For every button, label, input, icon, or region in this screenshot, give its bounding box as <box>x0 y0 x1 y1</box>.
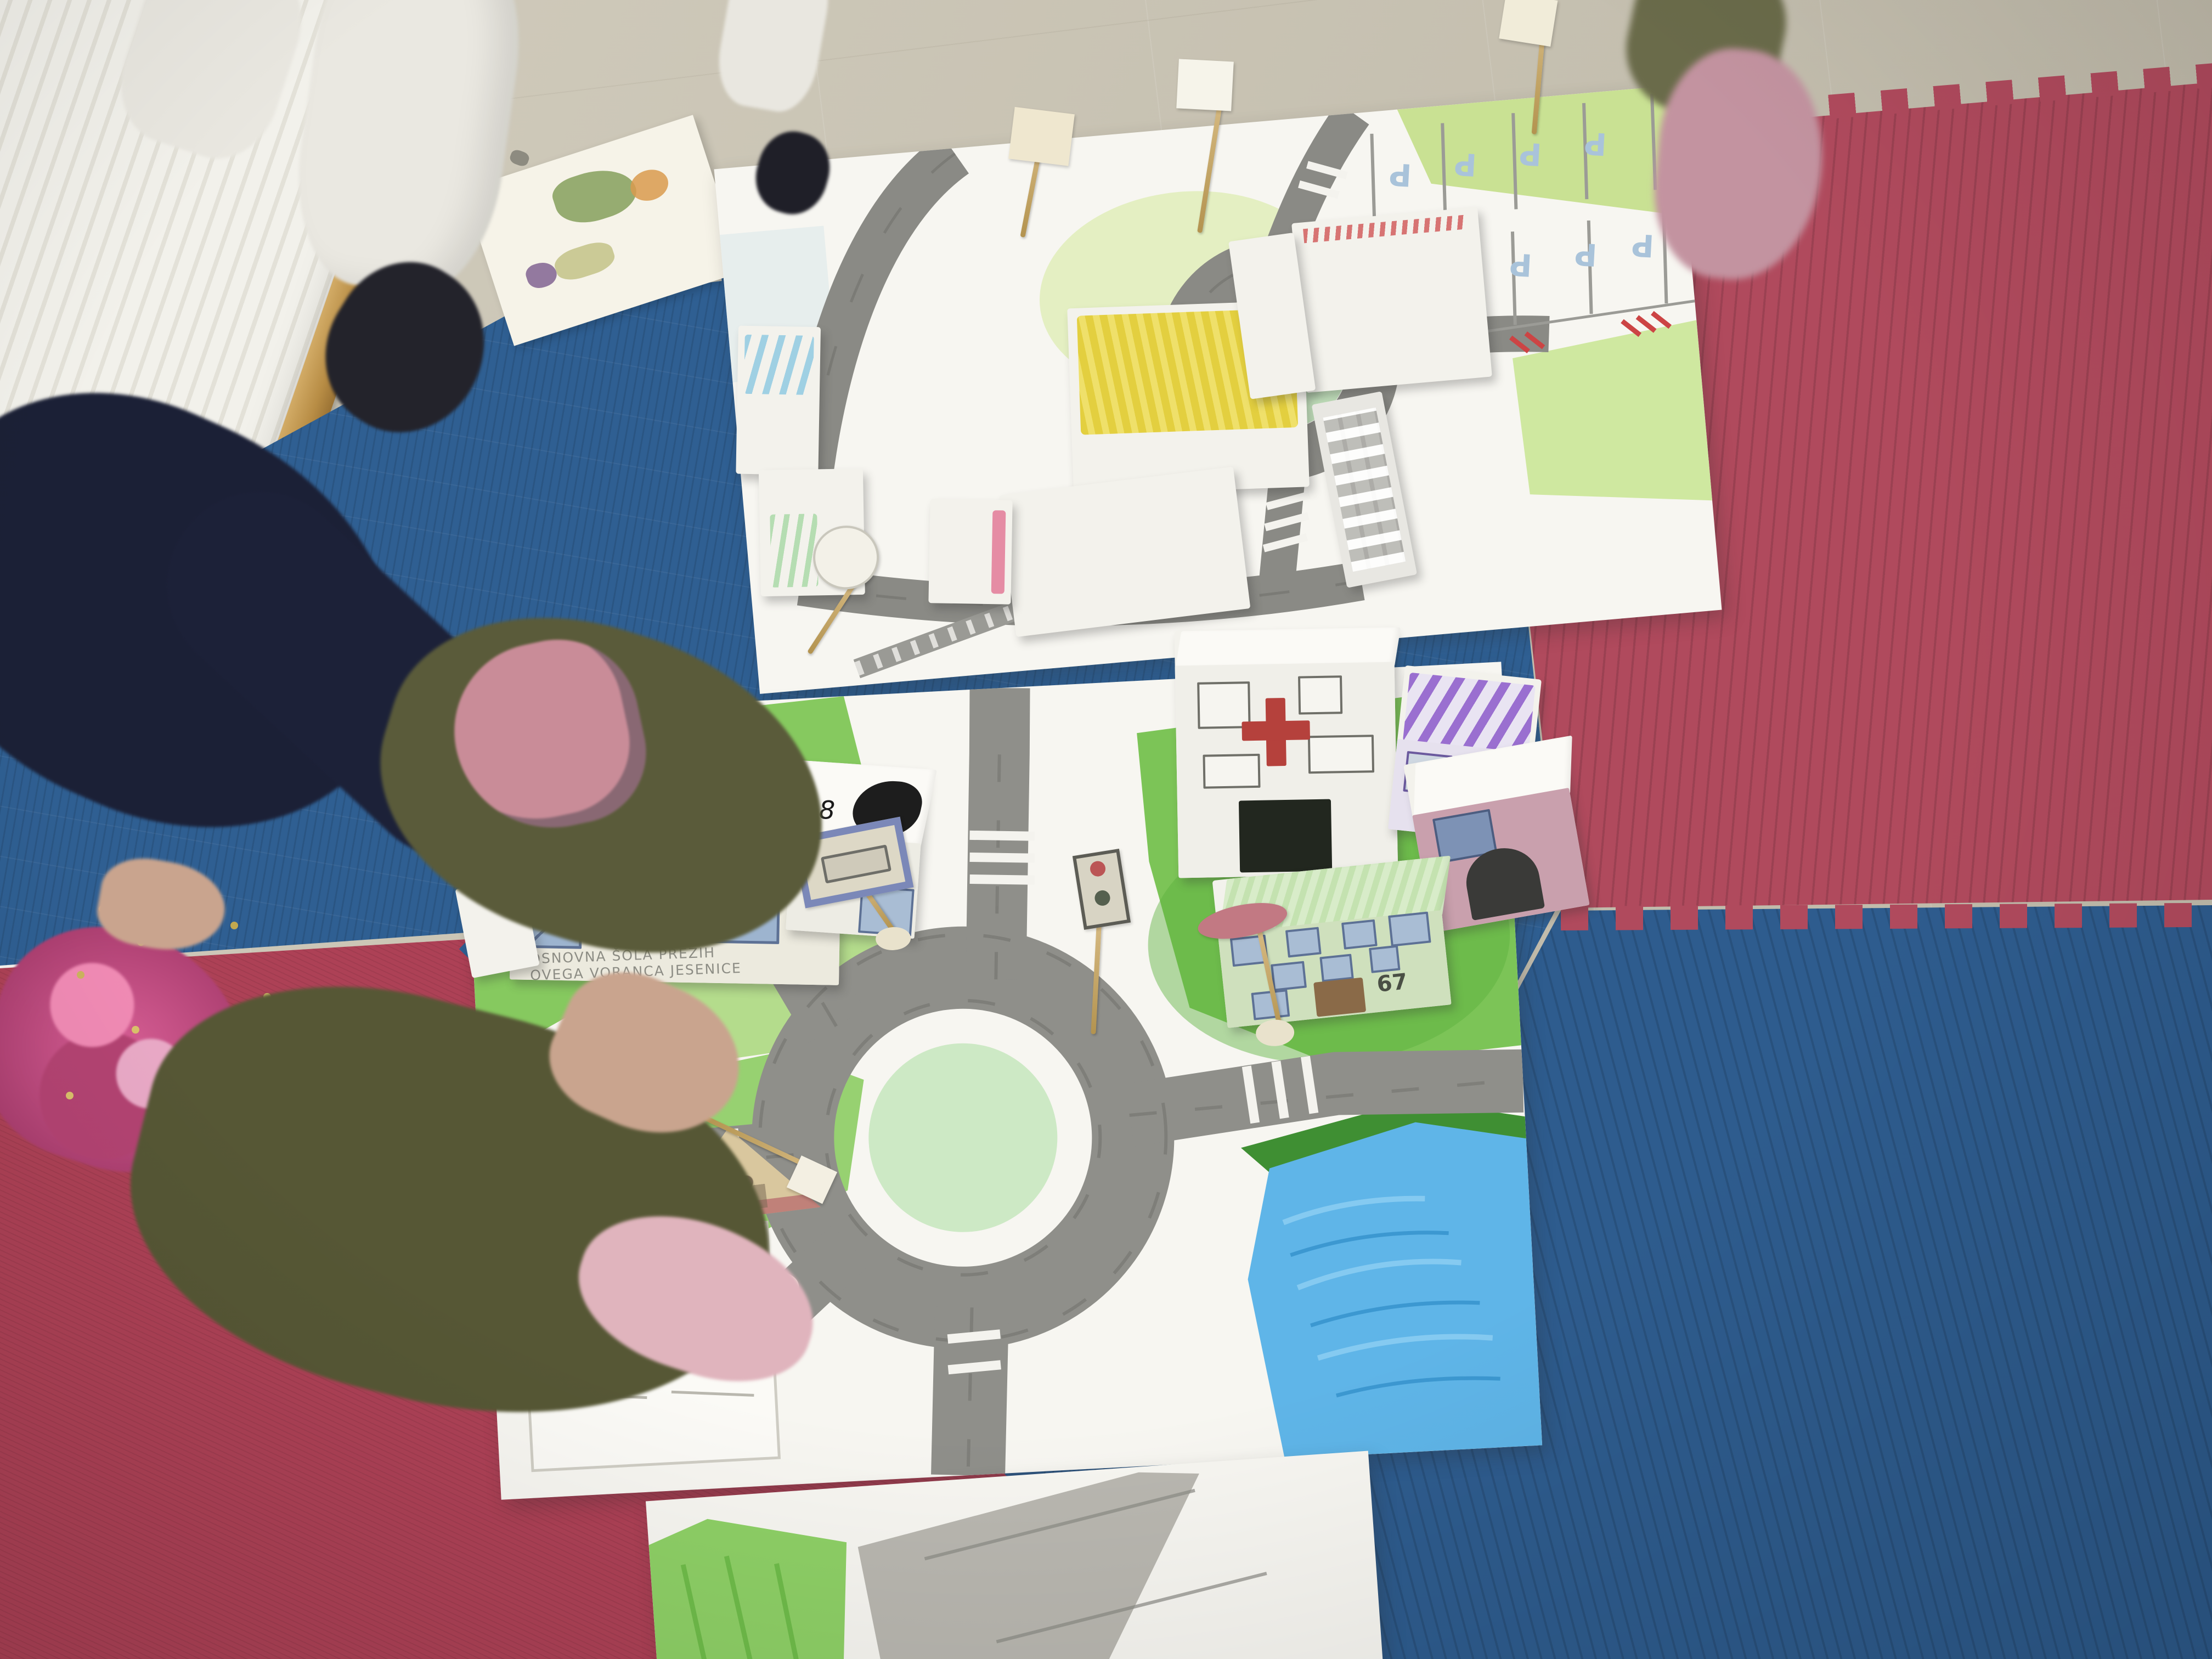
hospital-window <box>1298 675 1342 714</box>
city-map-poster-upper: PPPP PPPPP <box>714 85 1722 694</box>
parking-letter: P <box>1497 134 1564 173</box>
hospital-window <box>1203 753 1260 788</box>
flag-sign <box>1499 0 1558 47</box>
traffic-light-red-dot <box>1089 860 1107 877</box>
pink-stripe-decoration <box>991 510 1006 594</box>
grass-left <box>647 1509 859 1659</box>
drawing-scribble-olive <box>551 238 618 285</box>
apartment-building-model: 67 <box>1212 857 1452 1028</box>
road-gray <box>854 1468 1215 1659</box>
apartment-window <box>1285 927 1322 958</box>
drawing-scribble-green <box>548 160 641 232</box>
flag-sign <box>1176 59 1234 111</box>
green-stripe-decoration <box>770 513 818 588</box>
apartment-window <box>1341 919 1377 950</box>
apartment-number: 67 <box>1376 969 1409 998</box>
parking-letter: P <box>1367 155 1434 194</box>
model-building-small-pink-stripe <box>928 499 1012 605</box>
parking-letter: P <box>1552 234 1620 273</box>
model-building-large-right <box>1291 207 1492 393</box>
hospital-window <box>1308 735 1374 774</box>
model-building-wide <box>999 467 1250 637</box>
flag-sign <box>1008 107 1075 166</box>
classroom-floor-photo: PPPP PPPPP <box>0 0 2212 1659</box>
hospital-door <box>1239 799 1332 872</box>
hospital-front <box>1175 662 1398 878</box>
apartment-window <box>1271 961 1307 991</box>
apartment-window <box>1320 954 1354 983</box>
mat-puzzle-teeth <box>1561 903 2212 930</box>
roundabout-center-green <box>864 1039 1063 1237</box>
red-cross-icon <box>1242 721 1310 741</box>
bus-icon <box>820 844 891 884</box>
lake <box>1240 1116 1542 1460</box>
apartment-window <box>1369 945 1401 973</box>
apartment-window <box>1388 912 1431 947</box>
parking-letter: P <box>1487 245 1555 284</box>
traffic-light-dark-dot <box>1094 889 1111 907</box>
parking-letter: P <box>1562 123 1629 162</box>
model-building-blue-striped <box>736 326 821 476</box>
parking-letter: P <box>1431 144 1499 183</box>
parking-letter: P <box>1617 225 1668 264</box>
hospital-building-model <box>1175 628 1398 878</box>
apartment-door <box>1313 978 1366 1017</box>
blue-stripe-decoration <box>744 335 814 395</box>
